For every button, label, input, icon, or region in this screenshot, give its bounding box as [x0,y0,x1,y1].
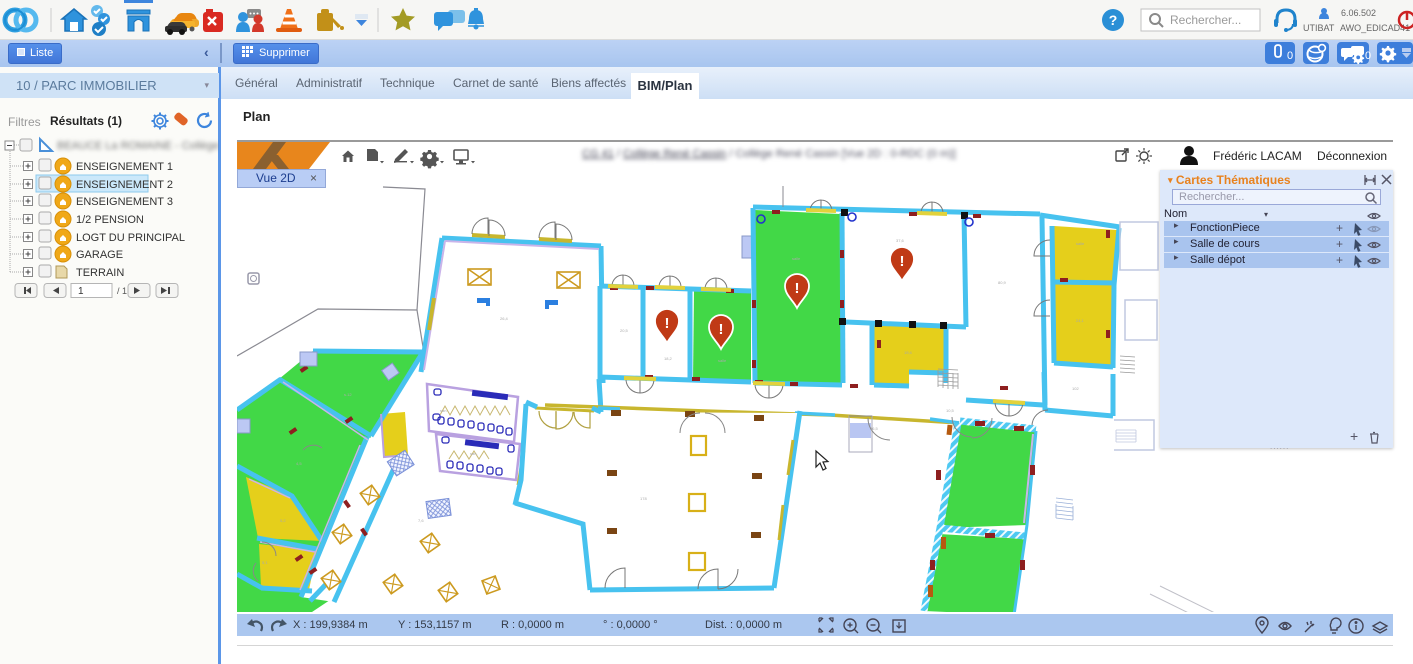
svg-text:0: 0 [1365,50,1371,62]
svg-text:16,5: 16,5 [870,426,879,431]
svg-text:0: 0 [1287,50,1293,62]
svg-text:UTIBAT: UTIBAT [1303,23,1335,33]
svg-text:GARAGE: GARAGE [76,249,123,261]
svg-text:Rechercher...: Rechercher... [1170,13,1241,27]
svg-text:26,4: 26,4 [500,316,509,321]
svg-text:TERRAIN: TERRAIN [76,267,124,279]
svg-text:BEAUCE La ROMAINE - Collège Re: BEAUCE La ROMAINE - Collège René Ca [57,140,219,152]
svg-text:s.12: s.12 [344,392,352,397]
svg-text:1/2 PENSION: 1/2 PENSION [76,214,144,226]
svg-text:6.06.502: 6.06.502 [1341,8,1376,18]
svg-text:!: ! [665,315,670,332]
svg-text:?: ? [1109,12,1118,28]
svg-text:salle: salle [792,256,801,261]
svg-text:ENSEIGNEMENT 2: ENSEIGNEMENT 2 [76,179,173,191]
svg-text:!: ! [719,321,724,338]
svg-text:5,2: 5,2 [280,518,286,523]
svg-text:1: 1 [78,286,84,297]
svg-text:10,5: 10,5 [946,408,955,413]
svg-text:24,1: 24,1 [1076,318,1085,323]
svg-text:/ 1: / 1 [117,286,127,296]
svg-text:18,2: 18,2 [664,356,673,361]
svg-text:4,5: 4,5 [296,461,302,466]
svg-text:5,1: 5,1 [262,560,268,565]
svg-text:19,4: 19,4 [904,350,913,355]
svg-text:178: 178 [640,496,647,501]
svg-text:salle: salle [718,358,727,363]
svg-text:ENSEIGNEMENT 3: ENSEIGNEMENT 3 [76,196,173,208]
svg-text:80,9: 80,9 [998,280,1007,285]
svg-text:san.: san. [440,408,448,413]
svg-text:!: ! [900,253,905,270]
svg-text:37,6: 37,6 [896,238,905,243]
svg-text:7,6: 7,6 [418,518,424,523]
svg-text:LOGT DU PRINCIPAL: LOGT DU PRINCIPAL [76,232,185,244]
svg-text:ENSEIGNEMENT 1: ENSEIGNEMENT 1 [76,161,173,173]
svg-text:102: 102 [1072,386,1079,391]
svg-text:20,5: 20,5 [620,328,629,333]
svg-text:!: ! [795,280,800,297]
svg-text:salle: salle [1076,241,1085,246]
svg-text:san.: san. [470,451,478,456]
